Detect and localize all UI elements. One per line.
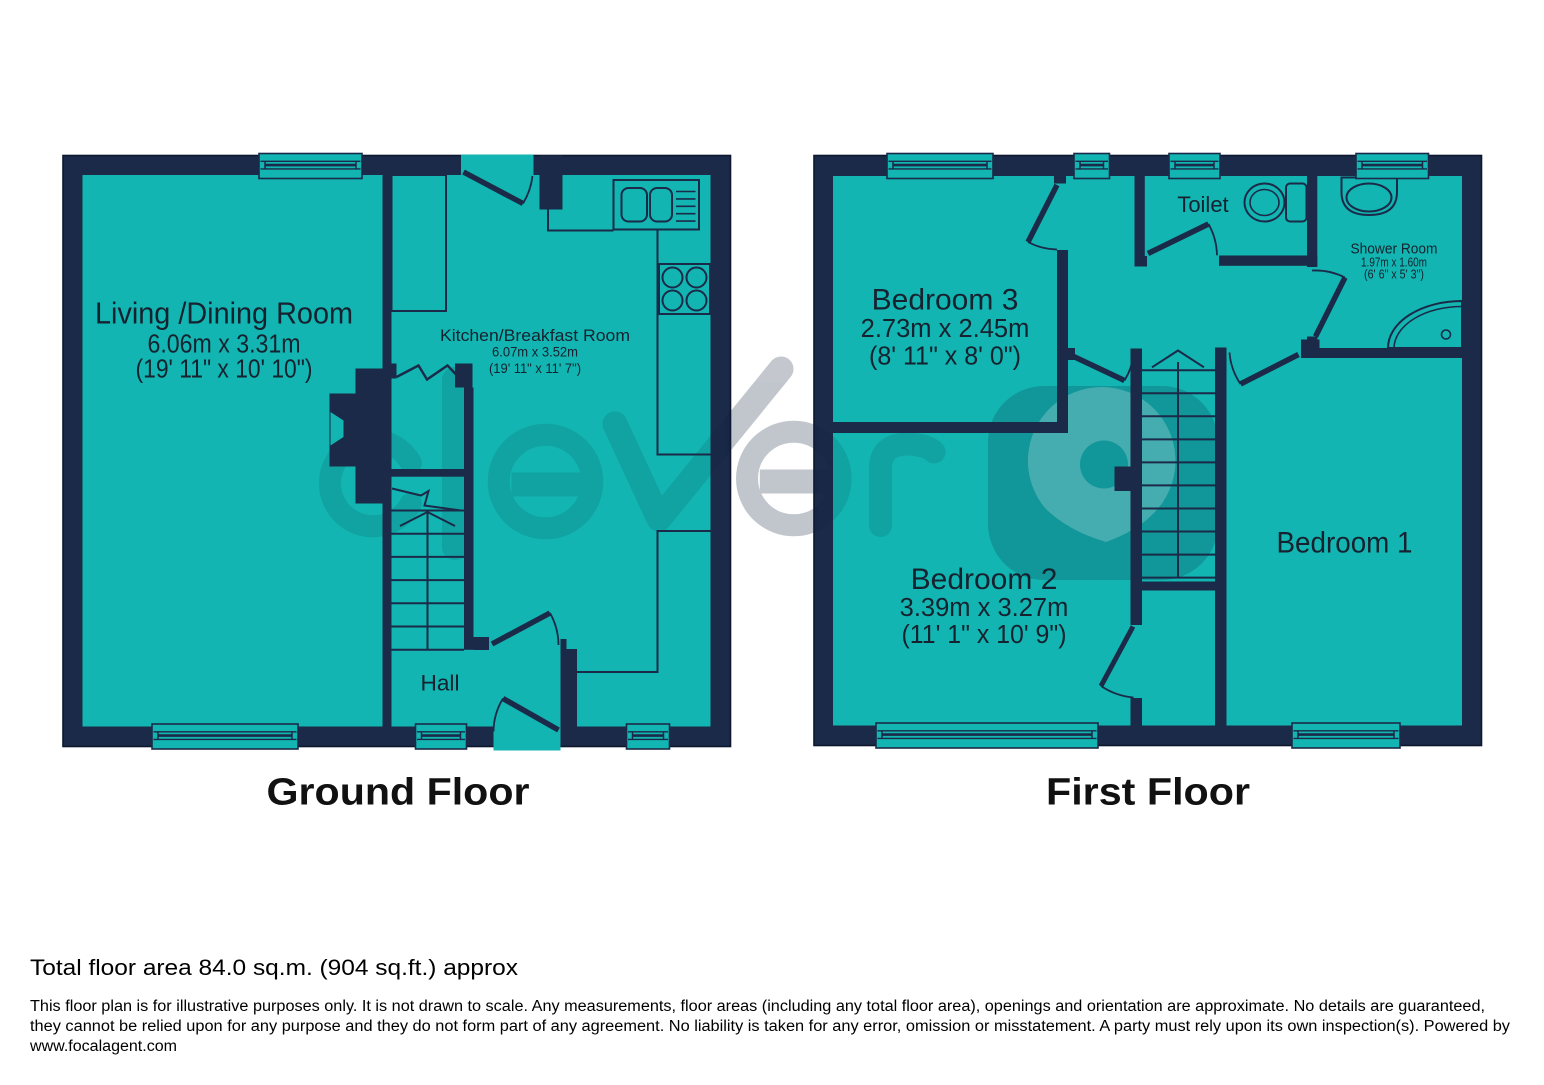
svg-text:First Floor: First Floor (1046, 772, 1250, 814)
svg-text:6.07m x 3.52m: 6.07m x 3.52m (492, 344, 578, 360)
svg-text:Bedroom 3: Bedroom 3 (872, 284, 1019, 317)
svg-text:Kitchen/Breakfast Room: Kitchen/Breakfast Room (440, 326, 630, 345)
svg-text:(19' 11" x 10' 10"): (19' 11" x 10' 10") (136, 356, 313, 384)
svg-text:Total floor area 84.0 sq.m. (9: Total floor area 84.0 sq.m. (904 sq.ft.)… (30, 955, 518, 980)
svg-text:(11' 1" x 10' 9"): (11' 1" x 10' 9") (902, 621, 1067, 649)
svg-text:Bedroom 1: Bedroom 1 (1277, 527, 1413, 560)
svg-text:This floor plan is for illustr: This floor plan is for illustrative purp… (30, 998, 1485, 1015)
svg-text:Ground Floor: Ground Floor (267, 772, 530, 814)
svg-text:(19' 11" x 11' 7"): (19' 11" x 11' 7") (489, 360, 581, 376)
svg-text:(8' 11" x 8' 0"): (8' 11" x 8' 0") (869, 343, 1021, 371)
svg-text:6.06m x 3.31m: 6.06m x 3.31m (148, 331, 301, 359)
svg-text:Bedroom 2: Bedroom 2 (911, 563, 1058, 596)
svg-text:3.39m x 3.27m: 3.39m x 3.27m (900, 594, 1069, 622)
svg-text:www.focalagent.com: www.focalagent.com (29, 1038, 177, 1055)
svg-text:Hall: Hall (421, 671, 460, 696)
svg-text:(6' 6" x 5' 3"): (6' 6" x 5' 3") (1364, 268, 1424, 282)
svg-text:they cannot be relied upon for: they cannot be relied upon for any purpo… (30, 1018, 1510, 1035)
svg-text:Toilet: Toilet (1177, 192, 1228, 217)
svg-text:2.73m x 2.45m: 2.73m x 2.45m (861, 315, 1030, 343)
svg-text:Living /Dining Room: Living /Dining Room (95, 296, 353, 331)
